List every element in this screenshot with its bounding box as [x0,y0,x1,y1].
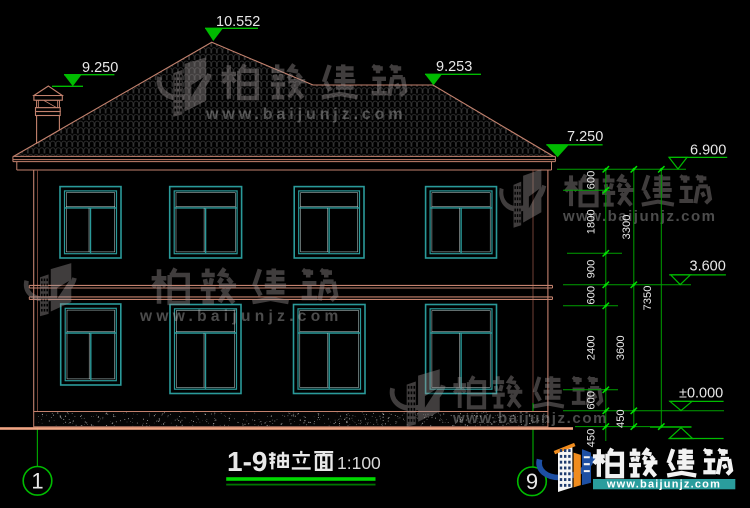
svg-text:600: 600 [586,286,598,305]
svg-text:www.baijunjz.com: www.baijunjz.com [205,106,407,123]
svg-text:2400: 2400 [586,335,598,360]
svg-text:3600: 3600 [615,335,627,360]
svg-text:www.baijunjz.com: www.baijunjz.com [452,410,608,427]
svg-text:3300: 3300 [621,215,633,240]
svg-text:9.253: 9.253 [436,59,472,75]
svg-text:9.250: 9.250 [82,60,118,76]
svg-text:www.baijunjz.com: www.baijunjz.com [139,308,343,325]
svg-text:600: 600 [586,391,598,410]
svg-text:3.600: 3.600 [690,259,726,275]
svg-text:1: 1 [31,469,43,494]
svg-text:1800: 1800 [586,209,598,234]
svg-text:1:100: 1:100 [337,453,381,473]
svg-text:±0.000: ±0.000 [679,386,723,402]
svg-text:1-9: 1-9 [227,446,267,477]
svg-text:9: 9 [526,469,538,494]
svg-text:7350: 7350 [642,286,654,311]
svg-text:600: 600 [586,171,598,190]
svg-text:900: 900 [586,260,598,279]
svg-text:450: 450 [586,429,598,448]
svg-text:450: 450 [615,409,627,428]
svg-text:www.baijunjz.com: www.baijunjz.com [606,479,721,491]
svg-text:7.250: 7.250 [567,129,603,145]
svg-text:10.552: 10.552 [216,14,260,30]
svg-text:6.900: 6.900 [690,143,726,159]
